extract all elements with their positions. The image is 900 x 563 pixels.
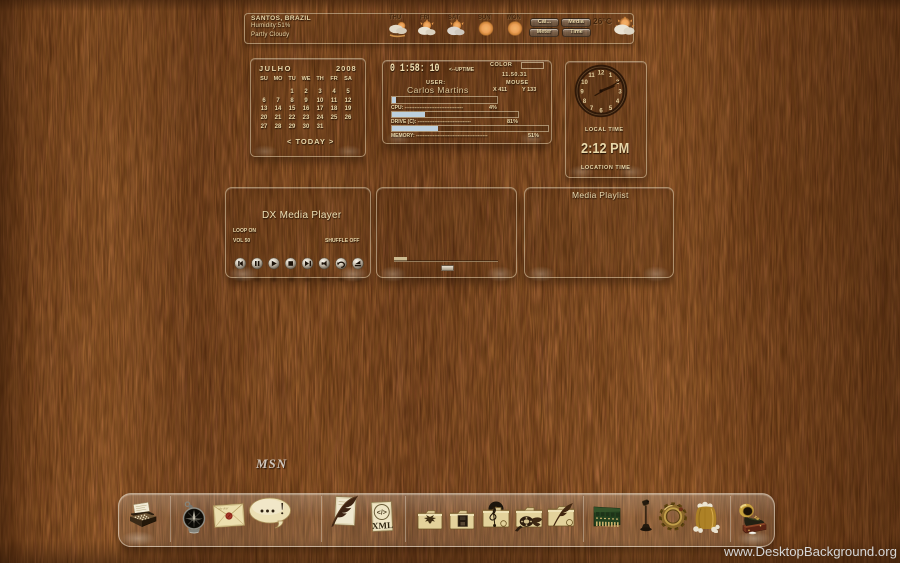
svg-text:My dear: My dear	[217, 506, 229, 511]
svg-text:XML: XML	[372, 520, 393, 531]
svg-text:11: 11	[588, 73, 595, 79]
svg-text:10: 10	[581, 80, 588, 86]
svg-text:</>: </>	[377, 509, 387, 517]
svg-text:12: 12	[598, 71, 605, 77]
